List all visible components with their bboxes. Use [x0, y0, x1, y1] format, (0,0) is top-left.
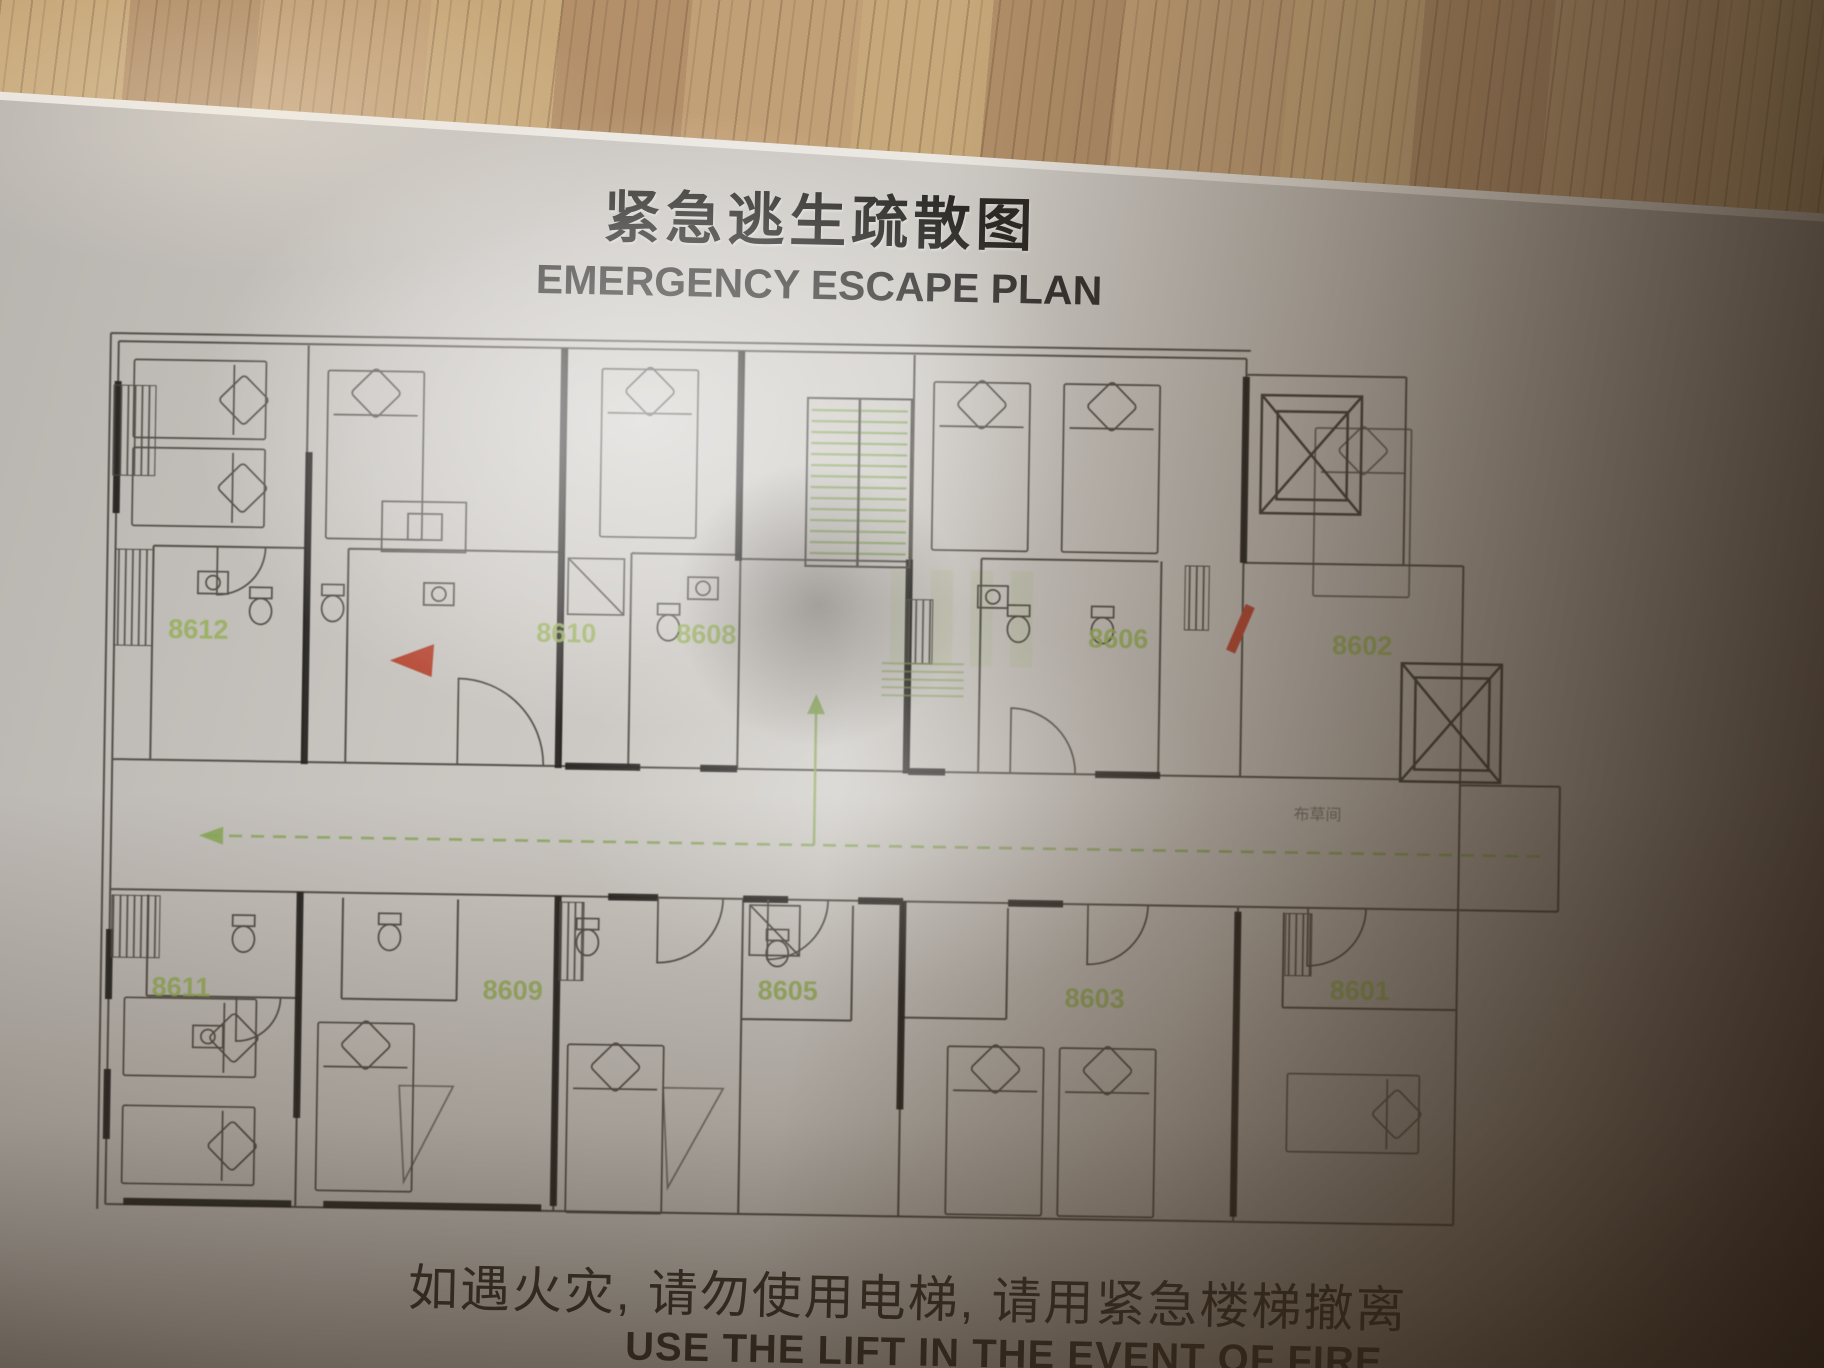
room-number-8605: 8605	[757, 975, 818, 1006]
room-number-8610: 8610	[536, 618, 597, 649]
plan-thick-walls	[105, 341, 1246, 1219]
photo-of-escape-plan-sign: 8612 8610 8608 8606 8602 8611 8609 8605 …	[0, 0, 1824, 1368]
escape-route	[199, 684, 1551, 865]
hatched-fixtures	[105, 385, 1320, 992]
red-alarm-mark-icon	[1226, 604, 1255, 654]
sign-title-cn: 紧急逃生疏散图	[520, 170, 1122, 265]
route-arrow-left-icon	[199, 826, 223, 844]
room-number-8609: 8609	[482, 975, 543, 1006]
room-number-8612: 8612	[168, 614, 229, 645]
room-number-8608: 8608	[676, 619, 737, 650]
elevator-shaft-icon	[1256, 395, 1506, 783]
room-number-8601: 8601	[1330, 975, 1391, 1006]
linen-room-label: 布草间	[1293, 806, 1341, 825]
room-number-8606: 8606	[1088, 623, 1149, 654]
red-direction-arrow-icon	[390, 643, 435, 677]
sign-title: 紧急逃生疏散图 EMERGENCY ESCAPE PLAN	[519, 170, 1122, 316]
room-number-8602: 8602	[1332, 630, 1393, 661]
route-arrow-up-icon	[807, 694, 825, 714]
room-number-8611: 8611	[151, 972, 210, 1003]
room-number-8603: 8603	[1064, 983, 1125, 1014]
